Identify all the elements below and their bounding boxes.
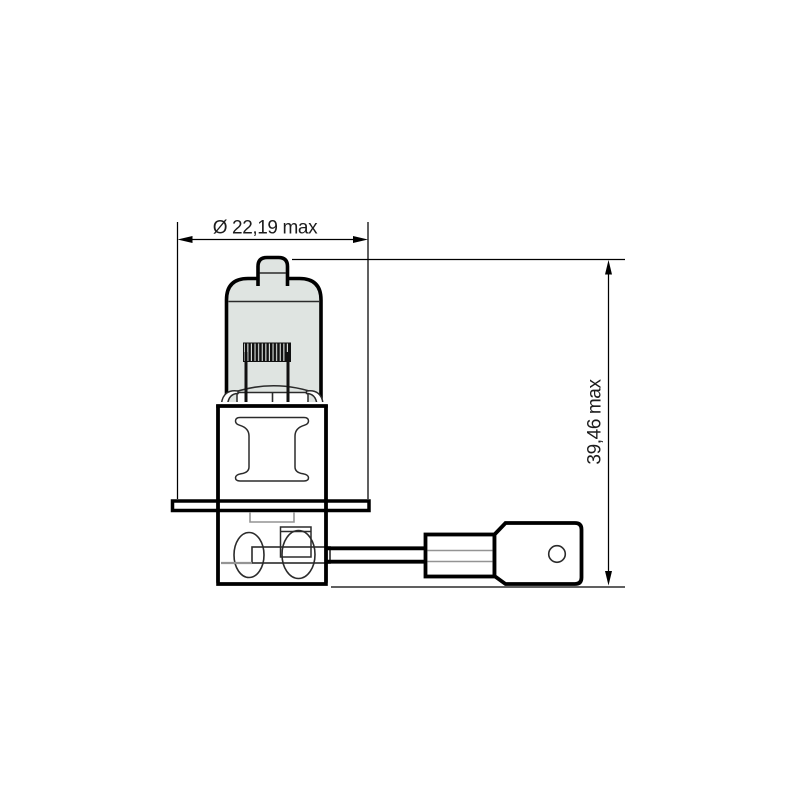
- bulb-base: [173, 402, 370, 584]
- spade-terminal-blade: [495, 523, 582, 584]
- technical-drawing-page: Ø 22,19 max 39,46 max: [0, 0, 800, 800]
- bulb-glass: [227, 258, 322, 408]
- crimp-sleeve: [426, 535, 495, 577]
- filament-coil: [244, 343, 291, 362]
- bulb-technical-drawing: Ø 22,19 max 39,46 max: [0, 0, 800, 800]
- arrow-left-icon: [178, 236, 193, 243]
- diameter-dimension-label: Ø 22,19 max: [213, 218, 318, 239]
- arrow-up-icon: [605, 260, 612, 275]
- lead-wire-and-terminal: [326, 523, 582, 584]
- glass-tip-nub: [258, 258, 288, 287]
- mounting-flange: [173, 501, 370, 511]
- arrow-down-icon: [605, 571, 612, 586]
- height-dimension-label: 39,46 max: [585, 379, 606, 465]
- arrow-right-icon: [353, 236, 368, 243]
